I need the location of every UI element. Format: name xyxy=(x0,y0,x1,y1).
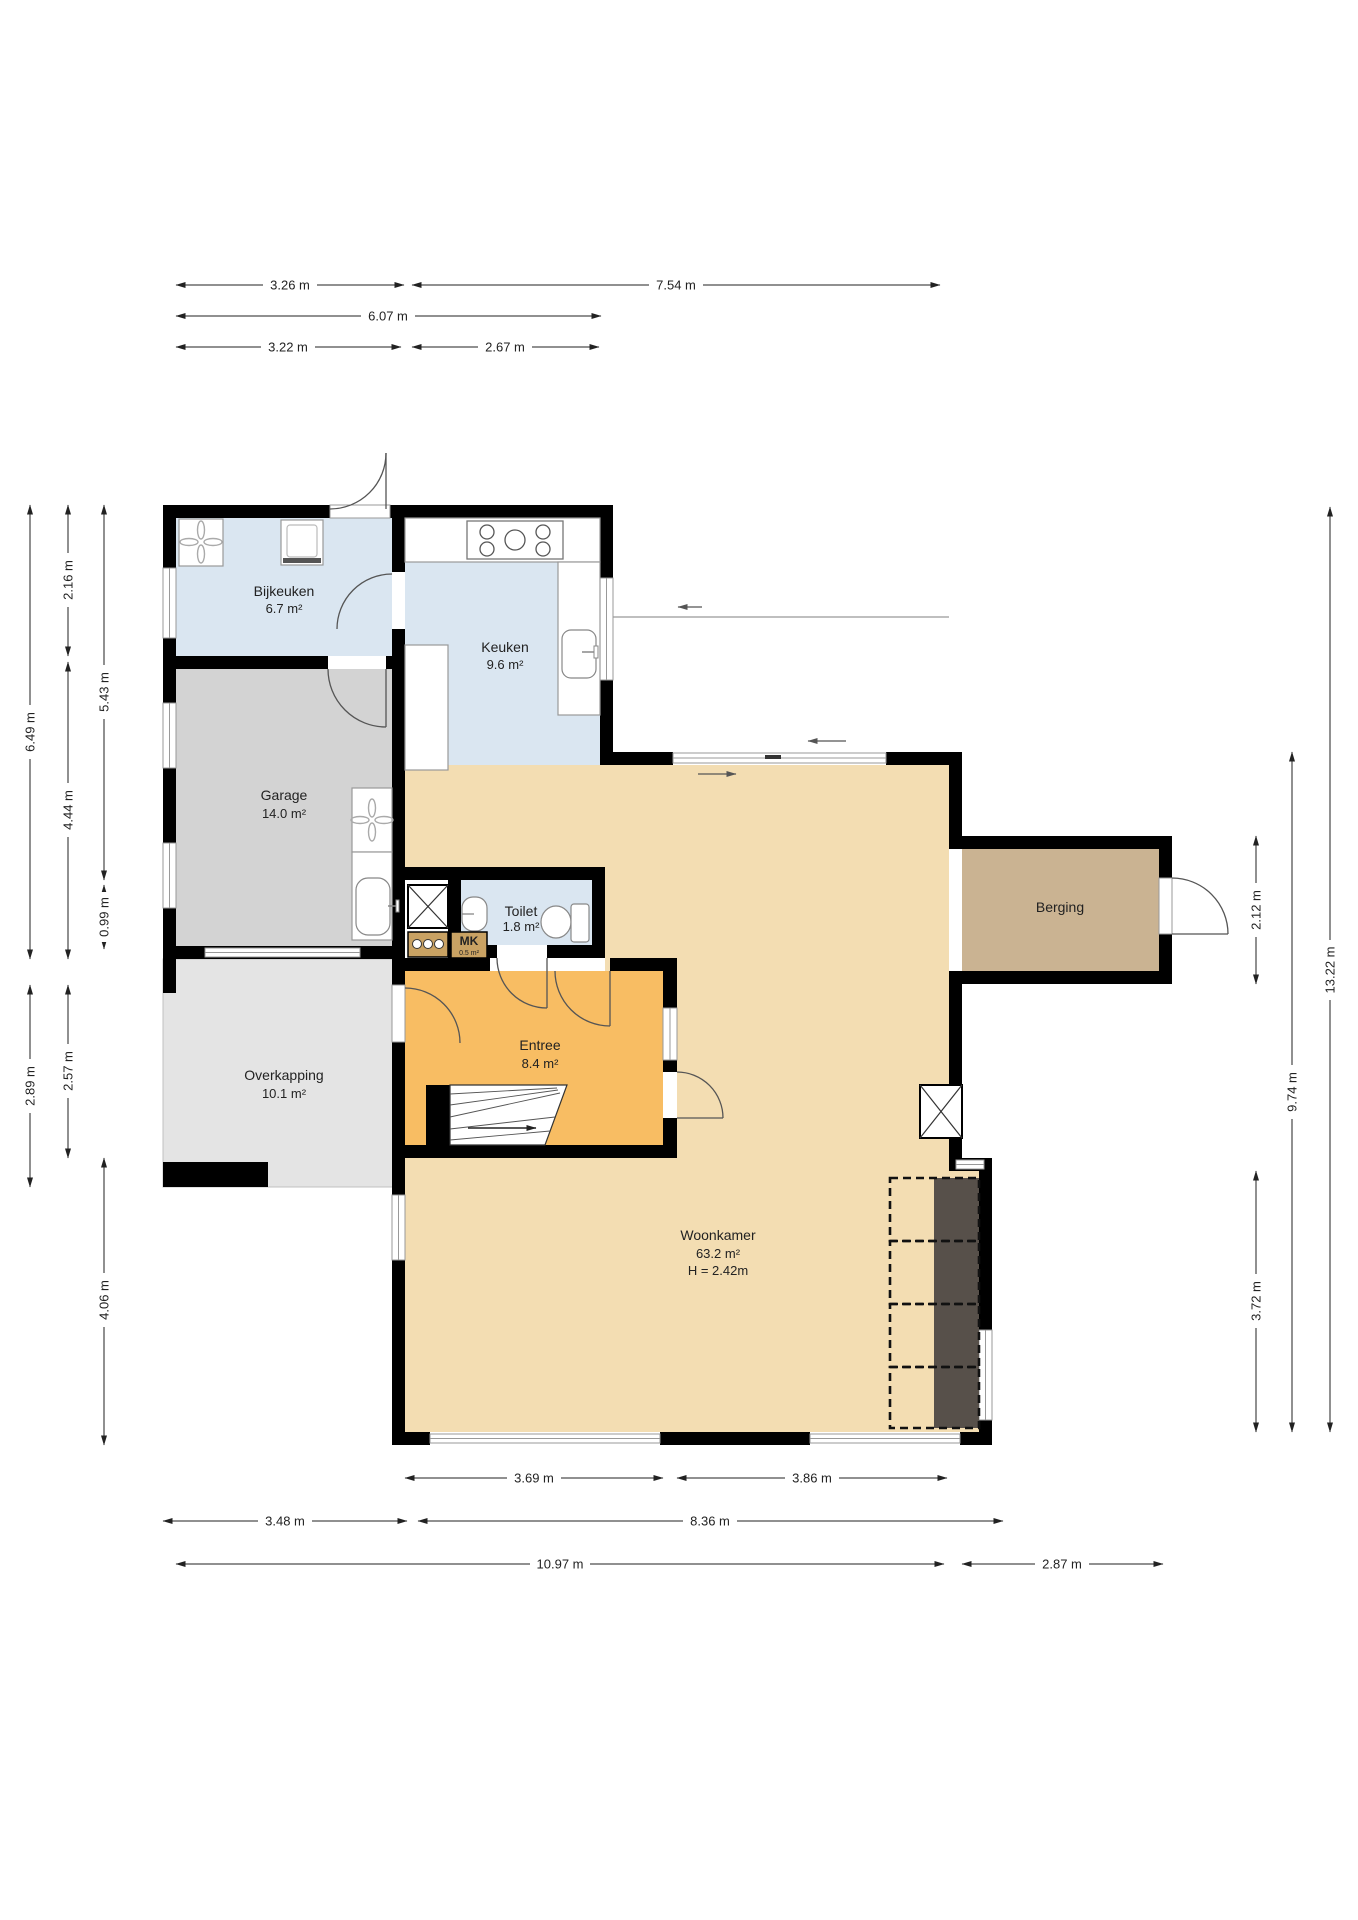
svg-text:2.16 m: 2.16 m xyxy=(61,560,76,600)
shaft-x-icon xyxy=(408,885,448,928)
ventilation-unit-icon xyxy=(179,519,223,566)
coat-cupboard-icon xyxy=(408,932,448,957)
room-woonkamer-mid xyxy=(677,971,949,1158)
window xyxy=(979,1330,992,1420)
label-berging: Berging xyxy=(1036,899,1084,915)
svg-text:3.86 m: 3.86 m xyxy=(792,1471,832,1486)
dim-top-754: 7.54 m xyxy=(412,277,940,293)
boiler-icon xyxy=(352,852,399,940)
window xyxy=(163,568,176,638)
meter-cupboard: MK 0.5 m² xyxy=(451,932,487,958)
label-keuken: Keuken xyxy=(481,639,528,655)
area-toilet: 1.8 m² xyxy=(503,919,541,934)
svg-text:13.22 m: 13.22 m xyxy=(1323,947,1338,994)
window xyxy=(600,578,613,680)
svg-text:6.49 m: 6.49 m xyxy=(23,712,38,752)
dim-bottom-287: 2.87 m xyxy=(962,1556,1163,1572)
dim-right-974: 9.74 m xyxy=(1284,752,1300,1432)
kitchen-counter-top xyxy=(405,518,600,562)
dim-left-099: 0.99 m xyxy=(96,885,112,949)
window xyxy=(810,1434,960,1443)
washbasin-icon xyxy=(462,897,487,931)
area-entree: 8.4 m² xyxy=(522,1056,560,1071)
dim-top-267: 2.67 m xyxy=(412,339,599,355)
area-overkapping: 10.1 m² xyxy=(262,1086,307,1101)
window xyxy=(163,843,176,908)
window xyxy=(956,1160,984,1169)
washing-machine-icon xyxy=(281,520,323,565)
dim-right-372: 3.72 m xyxy=(1248,1171,1264,1432)
window xyxy=(163,703,176,768)
svg-text:3.48 m: 3.48 m xyxy=(265,1514,305,1529)
kitchen-cabinet xyxy=(405,645,448,770)
dim-left-216: 2.16 m xyxy=(60,505,76,656)
svg-text:9.74 m: 9.74 m xyxy=(1285,1072,1300,1112)
label-overkapping: Overkapping xyxy=(244,1067,323,1083)
label-entree: Entree xyxy=(519,1037,560,1053)
svg-text:0.99 m: 0.99 m xyxy=(97,897,112,937)
svg-text:2.12 m: 2.12 m xyxy=(1249,890,1264,930)
dim-right-1322: 13.22 m xyxy=(1322,507,1338,1432)
dim-right-212: 2.12 m xyxy=(1248,836,1264,984)
svg-text:2.57 m: 2.57 m xyxy=(61,1051,76,1091)
floor-plan-canvas: MK 0.5 m² xyxy=(0,0,1358,1920)
dim-top-607: 6.07 m xyxy=(176,308,601,324)
dim-bottom-1097: 10.97 m xyxy=(176,1556,944,1572)
svg-text:2.87 m: 2.87 m xyxy=(1042,1557,1082,1572)
overkapping-corner-post xyxy=(163,1162,268,1187)
room-woonkamer-hall xyxy=(405,765,613,867)
label-bijkeuken: Bijkeuken xyxy=(254,583,315,599)
dim-bottom-386: 3.86 m xyxy=(677,1470,947,1486)
dim-bottom-369: 3.69 m xyxy=(405,1470,663,1486)
dim-left-257: 2.57 m xyxy=(60,985,76,1158)
svg-text:5.43 m: 5.43 m xyxy=(97,672,112,712)
door-bijkeuken-exterior xyxy=(330,453,390,518)
height-woonkamer: H = 2.42m xyxy=(688,1263,748,1278)
dim-top-322: 3.22 m xyxy=(176,339,401,355)
garage-ventilation-icon xyxy=(351,788,393,852)
area-keuken: 9.6 m² xyxy=(487,657,525,672)
dim-top-326: 3.26 m xyxy=(176,277,404,293)
garage-door xyxy=(205,948,360,957)
chimney-shaft-x-icon xyxy=(920,1085,962,1138)
dim-bottom-836: 8.36 m xyxy=(418,1513,1003,1529)
dim-left-543: 5.43 m xyxy=(96,505,112,880)
mk-label: MK xyxy=(460,934,479,948)
svg-text:2.67 m: 2.67 m xyxy=(485,340,525,355)
window xyxy=(392,1195,405,1260)
svg-text:10.97 m: 10.97 m xyxy=(537,1557,584,1572)
svg-text:6.07 m: 6.07 m xyxy=(368,309,408,324)
room-woonkamer-upper xyxy=(605,765,949,971)
area-woonkamer: 63.2 m² xyxy=(696,1246,741,1261)
window xyxy=(430,1434,660,1443)
floor-plan-page: MK 0.5 m² xyxy=(0,0,1358,1920)
area-garage: 14.0 m² xyxy=(262,806,307,821)
dim-bottom-348: 3.48 m xyxy=(163,1513,407,1529)
door-berging xyxy=(1159,878,1228,934)
mk-area: 0.5 m² xyxy=(459,950,480,957)
svg-text:3.69 m: 3.69 m xyxy=(514,1471,554,1486)
dim-left-406: 4.06 m xyxy=(96,1158,112,1445)
dim-left-289: 2.89 m xyxy=(22,985,38,1187)
svg-text:3.72 m: 3.72 m xyxy=(1249,1281,1264,1321)
roof-edge-line xyxy=(613,607,949,617)
svg-text:3.26 m: 3.26 m xyxy=(270,278,310,293)
dim-left-649: 6.49 m xyxy=(22,505,38,959)
label-woonkamer: Woonkamer xyxy=(680,1227,756,1243)
kitchen-sink-icon xyxy=(562,630,598,678)
label-garage: Garage xyxy=(261,787,308,803)
glass-partition xyxy=(663,1008,677,1060)
svg-text:2.89 m: 2.89 m xyxy=(23,1066,38,1106)
dim-left-444: 4.44 m xyxy=(60,662,76,959)
label-toilet: Toilet xyxy=(505,903,538,919)
svg-text:4.44 m: 4.44 m xyxy=(61,790,76,830)
svg-text:4.06 m: 4.06 m xyxy=(97,1280,112,1320)
svg-text:7.54 m: 7.54 m xyxy=(656,278,696,293)
area-bijkeuken: 6.7 m² xyxy=(266,601,304,616)
svg-text:8.36 m: 8.36 m xyxy=(690,1514,730,1529)
svg-text:3.22 m: 3.22 m xyxy=(268,340,308,355)
room-woonkamer-main xyxy=(405,1158,979,1432)
